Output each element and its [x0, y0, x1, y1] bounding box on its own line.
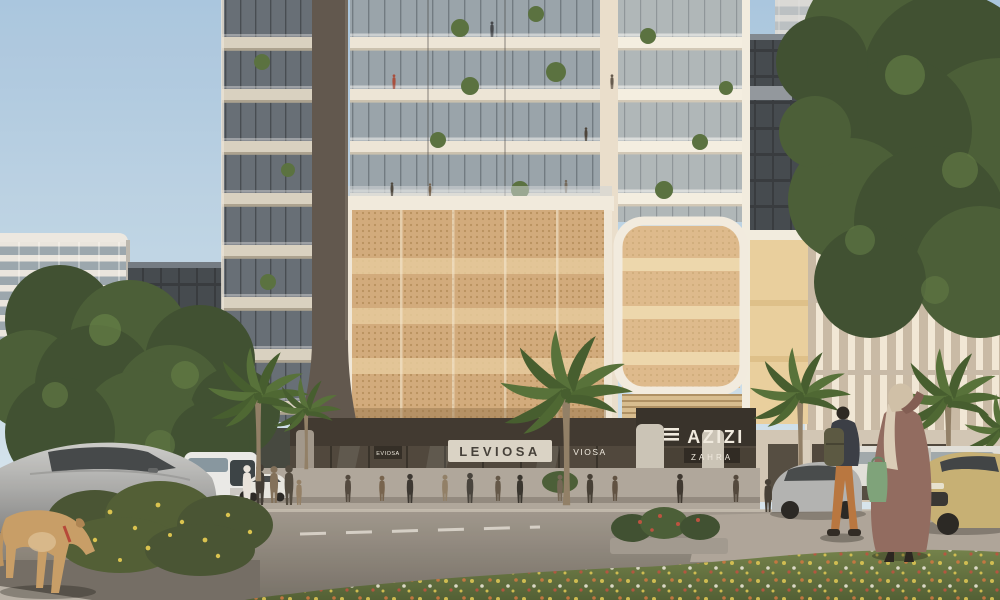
render-canvas: LEVIOSA EVIOSA VIOSA AZIZI ZAHRA	[0, 0, 1000, 600]
street-scene: LEVIOSA EVIOSA VIOSA AZIZI ZAHRA	[0, 0, 1000, 600]
sunlight-overlay	[0, 0, 1000, 600]
